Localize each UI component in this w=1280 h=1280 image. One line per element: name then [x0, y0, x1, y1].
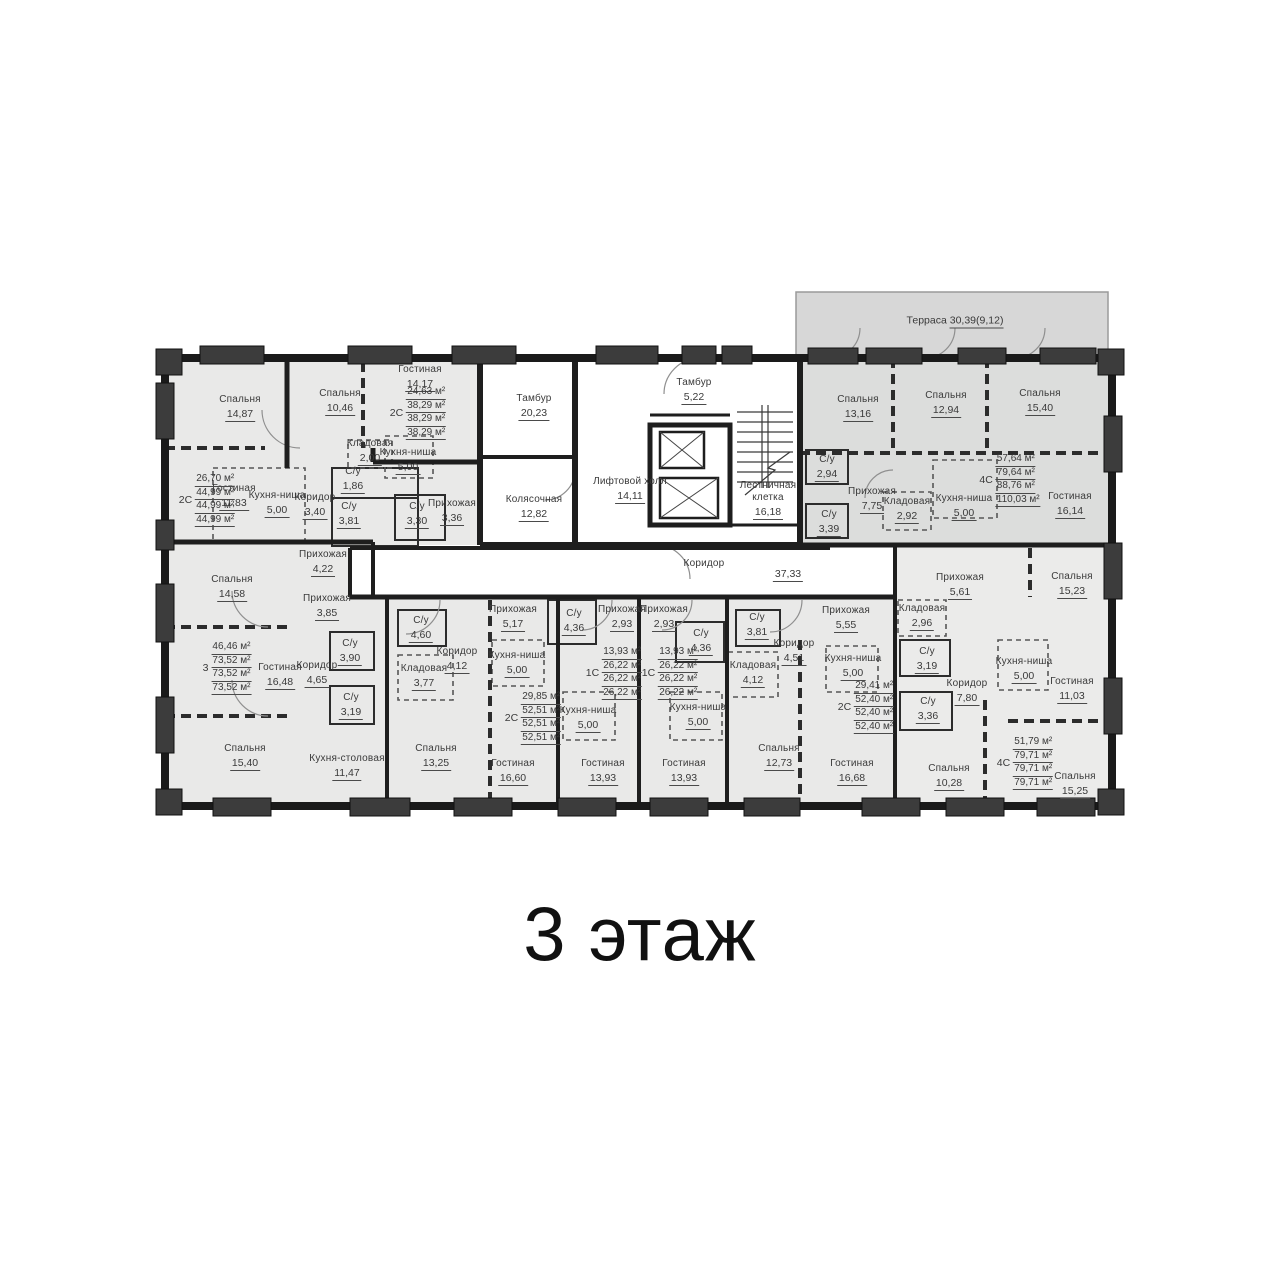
room-name: С/у — [915, 646, 939, 658]
room-area-value: 16,48 — [265, 676, 295, 690]
room-label: С/у3,90 — [338, 638, 362, 666]
room-name: Колясочная — [506, 494, 563, 506]
room-area-value: 4,60 — [409, 629, 433, 643]
room-name: Гостиная — [581, 758, 625, 770]
room-name: Кухня-ниша — [825, 653, 882, 665]
room-label: 37,33 — [773, 566, 803, 582]
room-name: С/у — [409, 615, 433, 627]
room-name: Коридор — [295, 492, 336, 504]
room-area-value: 16,68 — [837, 772, 867, 786]
room-label: С/у3,81 — [745, 612, 769, 640]
room-name: Гостиная — [1050, 676, 1094, 688]
apartment-area-line: 44,99 м² — [195, 514, 235, 528]
room-label: Прихожая5,61 — [936, 572, 984, 600]
room-name: С/у — [562, 608, 586, 620]
apartment-area-line: 26,22 м² — [658, 687, 698, 701]
room-label: Спальня12,73 — [758, 743, 800, 771]
terrace-name: Терраса — [907, 315, 947, 327]
room-name: Кухня-ниша — [996, 656, 1053, 668]
room-name: Кухня-ниша — [670, 702, 727, 714]
room-label: Лестничная клетка16,18 — [730, 480, 806, 520]
apartment-area-line: 29,85 м² — [521, 691, 561, 705]
apartment-area-lines: 13,93 м²26,22 м²26,22 м²26,22 м² — [658, 646, 698, 700]
room-area-value: 12,73 — [764, 757, 794, 771]
room-name: Гостиная — [491, 758, 535, 770]
apartment-area-line: 51,79 м² — [1013, 736, 1053, 750]
room-label: Кухня-ниша5,00 — [489, 650, 546, 678]
room-name: Спальня — [925, 390, 967, 402]
room-area-value: 12,94 — [931, 404, 961, 418]
room-label: Кухня-ниша5,00 — [670, 702, 727, 730]
room-name: Спальня — [415, 743, 457, 755]
room-area-value: 12,82 — [519, 508, 549, 522]
room-label: Спальня10,46 — [319, 388, 361, 416]
room-name: Спальня — [928, 763, 970, 775]
room-area-value: 13,16 — [843, 408, 873, 422]
room-label: Спальня12,94 — [925, 390, 967, 418]
room-label: Кладовая4,12 — [730, 660, 776, 688]
room-area-value: 5,00 — [841, 667, 865, 681]
room-label: Прихожая5,17 — [489, 604, 537, 632]
room-name: Кладовая — [884, 496, 930, 508]
room-area-value: 3,19 — [915, 660, 939, 674]
room-label: Спальня13,25 — [415, 743, 457, 771]
apartment-type: 2С — [838, 701, 851, 713]
room-label: Коридор7,80 — [947, 678, 988, 706]
room-label: С/у3,39 — [817, 509, 841, 537]
room-label: С/у3,81 — [337, 501, 361, 529]
room-name: Тамбур — [516, 393, 551, 405]
apartment-area-line: 79,64 м² — [996, 467, 1036, 481]
room-name: Коридор — [684, 558, 725, 570]
room-name: Гостиная — [398, 364, 442, 376]
room-area-value: 14,11 — [615, 490, 645, 504]
room-area-value: 3,90 — [338, 652, 362, 666]
room-area-value: 15,25 — [1060, 785, 1090, 799]
room-name: Прихожая — [822, 605, 870, 617]
apartment-area-lines: 46,46 м²73,52 м²73,52 м²73,52 м² — [211, 641, 251, 695]
room-area-value: 13,93 — [669, 772, 699, 786]
room-name: Спальня — [837, 394, 879, 406]
room-label: Кухня-столовая11,47 — [309, 753, 384, 781]
apartment-area-line: 13,93 м² — [658, 646, 698, 660]
room-area-value: 4,65 — [305, 674, 329, 688]
apartment-area-lines: 13,93 м²26,22 м²26,22 м²26,22 м² — [602, 646, 642, 700]
apartment-type: 2С — [390, 407, 403, 419]
room-area-value: 3,77 — [412, 677, 436, 691]
room-area-value: 15,40 — [1025, 402, 1055, 416]
apartment-area-lines: 29,85 м²52,51 м²52,51 м²52,51 м² — [521, 691, 561, 745]
room-label: Гостиная16,14 — [1048, 491, 1092, 519]
room-label: Прихожая2,93 — [640, 604, 688, 632]
room-area-value: 5,61 — [948, 586, 972, 600]
room-area-value: 5,55 — [834, 619, 858, 633]
apartment-area-line: 44,99 м² — [195, 500, 235, 514]
apartment-area-line: 46,46 м² — [211, 641, 251, 655]
apartment-area-line: 26,22 м² — [658, 673, 698, 687]
apartment-area-line: 73,52 м² — [211, 682, 251, 696]
room-name: С/у — [339, 692, 363, 704]
room-name: Прихожая — [428, 498, 476, 510]
room-label: Гостиная16,60 — [491, 758, 535, 786]
room-label: Кладовая2,92 — [884, 496, 930, 524]
apartment-area-stack: 2С29,41 м²52,40 м²52,40 м²52,40 м² — [838, 680, 894, 734]
room-name: Кухня-ниша — [380, 447, 437, 459]
room-name: Прихожая — [936, 572, 984, 584]
room-area-value: 3,30 — [405, 515, 429, 529]
room-area-value: 4,12 — [445, 660, 469, 674]
room-area-value: 14,58 — [217, 588, 247, 602]
room-name: Спальня — [319, 388, 361, 400]
apartment-area-line: 24,63 м² — [406, 386, 446, 400]
room-area-value: 3,36 — [440, 512, 464, 526]
room-name: Кухня-столовая — [309, 753, 384, 765]
room-area-value: 3,40 — [303, 506, 327, 520]
apartment-area-line: 52,51 м² — [521, 718, 561, 732]
room-area-value: 3,81 — [337, 515, 361, 529]
room-name: С/у — [689, 628, 713, 640]
room-area-value: 4,51 — [782, 652, 806, 666]
room-label: С/у4,60 — [409, 615, 433, 643]
room-area-value: 5,00 — [265, 504, 289, 518]
room-name: Гостиная — [1048, 491, 1092, 503]
room-label: Гостиная16,48 — [258, 662, 302, 690]
room-name: С/у — [815, 454, 839, 466]
room-area-value: 2,92 — [895, 510, 919, 524]
apartment-area-stack: 2С29,85 м²52,51 м²52,51 м²52,51 м² — [505, 691, 561, 745]
floor-title: 3 этаж — [523, 892, 757, 979]
room-label: Спальня15,40 — [1019, 388, 1061, 416]
room-area-value: 3,81 — [745, 626, 769, 640]
room-label: Прихожая3,36 — [428, 498, 476, 526]
room-label: Спальня15,40 — [224, 743, 266, 771]
room-name: Гостиная — [662, 758, 706, 770]
room-name: Спальня — [1054, 771, 1096, 783]
room-label: Спальня14,58 — [211, 574, 253, 602]
apartment-area-lines: 26,70 м²44,99 м²44,99 м²44,99 м² — [195, 473, 235, 527]
apartment-area-line: 57,64 м² — [996, 453, 1036, 467]
room-area-value: 5,17 — [501, 618, 525, 632]
room-name: Коридор — [774, 638, 815, 650]
room-name: Прихожая — [598, 604, 646, 616]
room-label: С/у3,19 — [339, 692, 363, 720]
room-area-value: 4,36 — [562, 622, 586, 636]
room-label: Колясочная12,82 — [506, 494, 563, 522]
room-name: Кладовая — [730, 660, 776, 672]
room-name: Спальня — [219, 394, 261, 406]
room-area-value: 20,23 — [519, 407, 549, 421]
room-label: Прихожая4,22 — [299, 549, 347, 577]
room-label: Кухня-ниша5,00 — [560, 705, 617, 733]
room-label: Кладовая2,96 — [899, 603, 945, 631]
room-name: Кухня-ниша — [560, 705, 617, 717]
apartment-area-line: 52,40 м² — [854, 721, 894, 735]
apartment-area-stack: 4С51,79 м²79,71 м²79,71 м²79,71 м² — [997, 736, 1053, 790]
room-name: Коридор — [297, 660, 338, 672]
apartment-type: 4С — [997, 757, 1010, 769]
room-name: Гостиная — [830, 758, 874, 770]
room-area-value: 10,46 — [325, 402, 355, 416]
room-label: Тамбур20,23 — [516, 393, 551, 421]
apartment-area-stack: 2С24,63 м²38,29 м²38,29 м²38,29 м² — [390, 386, 446, 440]
room-area-value: 16,18 — [753, 506, 783, 520]
room-area-value: 15,40 — [230, 757, 260, 771]
room-area-value: 5,00 — [396, 461, 420, 475]
room-label: Коридор4,12 — [437, 646, 478, 674]
apartment-area-line: 38,29 м² — [406, 427, 446, 441]
room-area-value: 11,47 — [332, 767, 362, 781]
room-area-value: 5,00 — [686, 716, 710, 730]
room-name: Кухня-ниша — [489, 650, 546, 662]
apartment-area-line: 52,40 м² — [854, 707, 894, 721]
apartment-area-line: 29,41 м² — [854, 680, 894, 694]
apartment-area-line: 52,40 м² — [854, 694, 894, 708]
room-area-value: 16,14 — [1055, 505, 1085, 519]
room-area-value: 2,94 — [815, 468, 839, 482]
room-name: Прихожая — [299, 549, 347, 561]
apartment-area-line: 73,52 м² — [211, 655, 251, 669]
apartment-type: 1С — [586, 667, 599, 679]
apartment-area-line: 38,29 м² — [406, 413, 446, 427]
apartment-area-line: 26,70 м² — [195, 473, 235, 487]
room-name: С/у — [338, 638, 362, 650]
room-name: Прихожая — [640, 604, 688, 616]
room-label: С/у4,36 — [562, 608, 586, 636]
room-area-value: 1,86 — [341, 480, 365, 494]
room-label: Гостиная13,93 — [581, 758, 625, 786]
room-name: С/у — [341, 466, 365, 478]
apartment-area-line: 79,71 м² — [1013, 777, 1053, 791]
room-area-value: 15,23 — [1057, 585, 1087, 599]
room-name: Лестничная клетка — [730, 480, 806, 504]
room-name: Коридор — [947, 678, 988, 690]
room-label: Коридор — [684, 558, 725, 570]
apartment-area-line: 26,22 м² — [658, 660, 698, 674]
terrace-area-value: 30,39(9,12) — [950, 315, 1004, 329]
room-area-value: 13,25 — [421, 757, 451, 771]
room-label: С/у1,86 — [341, 466, 365, 494]
room-label: Тамбур5,22 — [676, 377, 711, 405]
apartment-area-line: 88,76 м² — [996, 480, 1036, 494]
room-area-value: 3,19 — [339, 706, 363, 720]
room-area-value: 3,36 — [916, 710, 940, 724]
apartment-area-line: 26,22 м² — [602, 673, 642, 687]
room-label: С/у3,36 — [916, 696, 940, 724]
apartment-area-stack: 1С13,93 м²26,22 м²26,22 м²26,22 м² — [586, 646, 642, 700]
apartment-type: 3 — [203, 662, 209, 674]
apartment-area-line: 52,51 м² — [521, 732, 561, 746]
room-name: Спальня — [224, 743, 266, 755]
apartment-area-line: 73,52 м² — [211, 668, 251, 682]
room-name: Лифтовой холл — [593, 476, 667, 488]
apartment-area-lines: 57,64 м²79,64 м²88,76 м²110,03 м² — [996, 453, 1041, 507]
floor-plan-drawing — [0, 0, 1280, 1280]
apartment-area-line: 26,22 м² — [602, 660, 642, 674]
room-label: С/у3,19 — [915, 646, 939, 674]
apartment-area-lines: 24,63 м²38,29 м²38,29 м²38,29 м² — [406, 386, 446, 440]
room-area-value: 2,93 — [652, 618, 676, 632]
apartment-area-line: 44,99 м² — [195, 487, 235, 501]
room-area-value: 16,60 — [498, 772, 528, 786]
terrace-label: Терраса 30,39(9,12) — [907, 312, 1004, 329]
room-area-value: 5,00 — [1012, 670, 1036, 684]
room-label: Лифтовой холл14,11 — [593, 476, 667, 504]
room-label: Коридор3,40 — [295, 492, 336, 520]
room-name: С/у — [817, 509, 841, 521]
room-area-value: 5,00 — [576, 719, 600, 733]
room-name: Прихожая — [303, 593, 351, 605]
room-label: Спальня14,87 — [219, 394, 261, 422]
room-name: Прихожая — [489, 604, 537, 616]
room-area-value: 2,96 — [910, 617, 934, 631]
floor-plan: Терраса 30,39(9,12) Спальня14,87Гостиная… — [0, 0, 1280, 1280]
room-name: Тамбур — [676, 377, 711, 389]
room-area-value: 2,00 — [358, 452, 382, 466]
room-label: С/у2,94 — [815, 454, 839, 482]
room-label: Гостиная16,68 — [830, 758, 874, 786]
room-label: Прихожая2,93 — [598, 604, 646, 632]
apartment-type: 2С — [179, 494, 192, 506]
apartment-area-stack: 346,46 м²73,52 м²73,52 м²73,52 м² — [203, 641, 252, 695]
apartment-area-line: 79,71 м² — [1013, 763, 1053, 777]
room-label: Спальня10,28 — [928, 763, 970, 791]
room-area-value: 14,87 — [225, 408, 255, 422]
apartment-area-line: 26,22 м² — [602, 687, 642, 701]
room-area-value: 5,00 — [952, 507, 976, 521]
room-label: Коридор4,65 — [297, 660, 338, 688]
room-label: Спальня15,25 — [1054, 771, 1096, 799]
room-name: Спальня — [758, 743, 800, 755]
apartment-area-stack: 1С13,93 м²26,22 м²26,22 м²26,22 м² — [642, 646, 698, 700]
apartment-area-line: 38,29 м² — [406, 400, 446, 414]
room-label: С/у3,30 — [405, 501, 429, 529]
apartment-area-line: 110,03 м² — [996, 494, 1041, 508]
room-label: Кухня-ниша5,00 — [825, 653, 882, 681]
apartment-type: 2С — [505, 712, 518, 724]
room-name: Коридор — [437, 646, 478, 658]
room-area-value: 37,33 — [773, 568, 803, 582]
room-label: Кухня-ниша5,00 — [380, 447, 437, 475]
room-label: Коридор4,51 — [774, 638, 815, 666]
apartment-area-line: 79,71 м² — [1013, 750, 1053, 764]
room-label: Кухня-ниша5,00 — [996, 656, 1053, 684]
room-name: Гостиная — [258, 662, 302, 674]
room-label: Прихожая3,85 — [303, 593, 351, 621]
apartment-area-line: 13,93 м² — [602, 646, 642, 660]
room-area-value: 5,00 — [505, 664, 529, 678]
room-area-value: 10,28 — [934, 777, 964, 791]
room-label: Спальня13,16 — [837, 394, 879, 422]
room-area-value: 11,03 — [1057, 690, 1087, 704]
apartment-area-stack: 2С26,70 м²44,99 м²44,99 м²44,99 м² — [179, 473, 235, 527]
apartment-area-lines: 51,79 м²79,71 м²79,71 м²79,71 м² — [1013, 736, 1053, 790]
apartment-type: 4С — [979, 474, 992, 486]
room-area-value: 3,39 — [817, 523, 841, 537]
room-area-value: 4,22 — [311, 563, 335, 577]
room-area-value: 13,93 — [588, 772, 618, 786]
room-label: Прихожая5,55 — [822, 605, 870, 633]
room-area-value: 2,93 — [610, 618, 634, 632]
room-name: С/у — [337, 501, 361, 513]
room-name: Спальня — [211, 574, 253, 586]
room-area-value: 4,12 — [741, 674, 765, 688]
apartment-type: 1С — [642, 667, 655, 679]
room-label: Гостиная11,03 — [1050, 676, 1094, 704]
room-name: Спальня — [1019, 388, 1061, 400]
room-name: С/у — [745, 612, 769, 624]
room-name: С/у — [405, 501, 429, 513]
room-name: Кладовая — [899, 603, 945, 615]
apartment-area-stack: 4С57,64 м²79,64 м²88,76 м²110,03 м² — [979, 453, 1040, 507]
apartment-area-line: 52,51 м² — [521, 705, 561, 719]
room-area-value: 7,75 — [860, 500, 884, 514]
room-name: С/у — [916, 696, 940, 708]
room-label: Спальня15,23 — [1051, 571, 1093, 599]
apartment-area-lines: 29,41 м²52,40 м²52,40 м²52,40 м² — [854, 680, 894, 734]
room-area-value: 7,80 — [955, 692, 979, 706]
room-name: Спальня — [1051, 571, 1093, 583]
room-area-value: 5,22 — [682, 391, 706, 405]
room-label: Гостиная13,93 — [662, 758, 706, 786]
room-area-value: 3,85 — [315, 607, 339, 621]
